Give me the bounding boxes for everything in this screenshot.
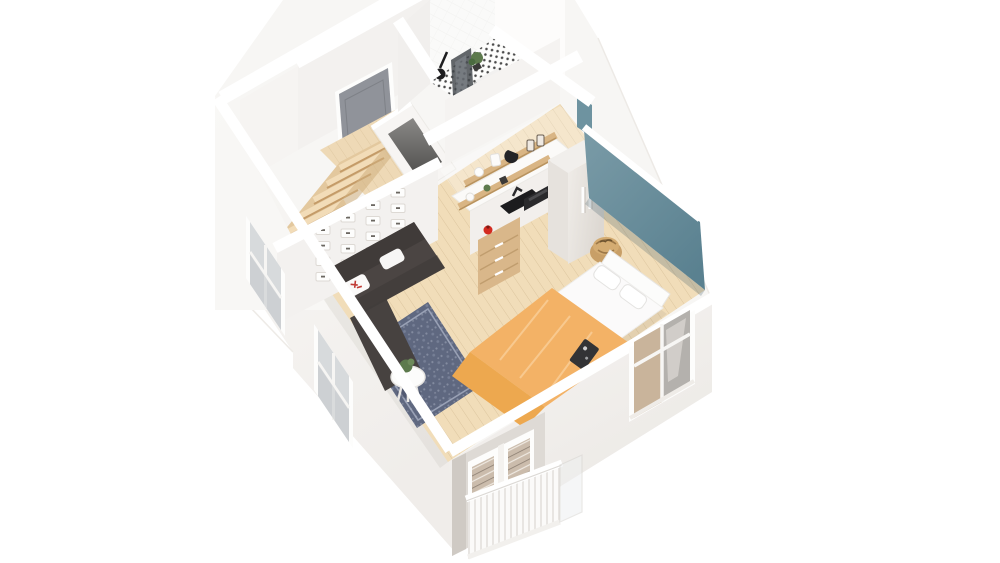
shelf-plant [484,185,491,192]
wall-panel-dot [396,192,400,194]
table-plant-leaf [408,359,415,366]
shelf-jug [490,153,501,166]
wall-panel-dot [396,223,400,225]
shelf-cup [475,168,484,177]
wall-panel-dot [371,220,375,222]
shelf-bowl [466,193,474,201]
shelf-jar-1 [527,140,534,151]
wall-panel-dot [346,248,350,250]
wardrobe-side [548,160,568,262]
wall-panel-dot [346,217,350,219]
shelf-jar-2 [537,135,544,146]
apartment-3d-svg [0,0,1000,563]
railing-glass-side [560,455,582,522]
wall-panel-dot [371,235,375,237]
floorplan-render [0,0,1000,563]
recess-reveal [452,453,466,556]
wall-panel-dot [396,207,400,209]
wall-panel-dot [321,276,325,278]
wall-panel-dot [371,204,375,206]
red-kettle-lid [486,225,489,228]
wall-panel-dot [346,232,350,234]
